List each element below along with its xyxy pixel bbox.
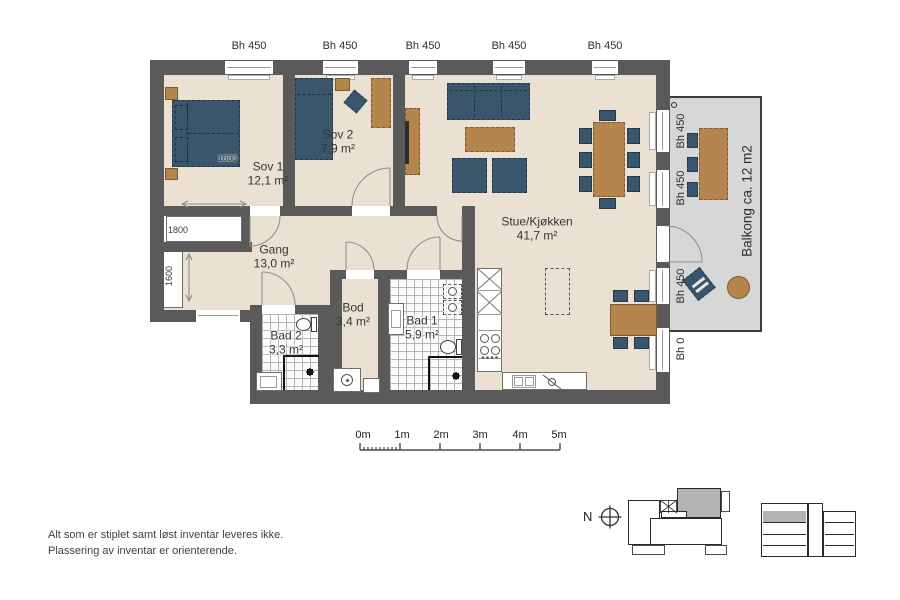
coffee-table xyxy=(465,127,515,152)
scale-label: 4m xyxy=(512,429,527,441)
nightstand xyxy=(165,87,178,100)
scale-label: 2m xyxy=(433,429,448,441)
window-height-label: Bh 450 xyxy=(675,171,687,206)
washer-dashed xyxy=(443,284,462,299)
room-label-sov1: Sov 1 12,1 m² xyxy=(248,160,289,189)
dining-chair xyxy=(599,110,616,121)
small-dining-chair xyxy=(634,337,649,349)
room-label-bod: Bod 3,4 m² xyxy=(336,301,370,330)
dryer-dashed xyxy=(443,300,462,315)
dining-chair xyxy=(627,128,640,144)
toilet-tank xyxy=(456,339,462,355)
elevation-floor-line xyxy=(763,522,806,523)
room-area: 3,4 m² xyxy=(336,315,370,329)
window-right-3 xyxy=(657,268,669,304)
room-label-bad2: Bad 2 3,3 m² xyxy=(269,329,303,358)
wall-bod-stub-left xyxy=(342,270,346,279)
balcony-chair xyxy=(687,157,698,172)
window-top-5 xyxy=(592,61,618,74)
room-name: Bad 1 xyxy=(405,314,439,328)
elevation-tower xyxy=(808,503,823,557)
floor-plan-drawing: Bh 450 Bh 450 Bh 450 Bh 450 Bh 450 Bh 45… xyxy=(0,0,900,600)
balcony-table xyxy=(699,128,728,200)
window-height-label: Bh 450 xyxy=(675,269,687,304)
window-height-label: Bh 450 xyxy=(492,40,527,52)
dining-table xyxy=(593,122,625,197)
room-name: Stue/Kjøkken xyxy=(501,215,572,229)
window-sill xyxy=(496,75,522,80)
shower-screen xyxy=(283,355,285,390)
toilet-bowl xyxy=(440,340,456,354)
bed-dimension: 1600 xyxy=(218,153,237,163)
storage-box xyxy=(363,378,380,393)
room-area: 3,3 m² xyxy=(269,343,303,357)
scale-label: 3m xyxy=(472,429,487,441)
elevation-floor-line xyxy=(825,545,854,546)
vanity-sink xyxy=(391,310,401,328)
sink-basin xyxy=(260,376,277,388)
armchair xyxy=(452,158,487,193)
room-area: 13,0 m² xyxy=(254,257,295,271)
bed-pillow-line xyxy=(297,94,331,95)
wardrobe-dimension: 1800 xyxy=(168,225,188,235)
desk xyxy=(371,78,391,128)
keyplan-footprint xyxy=(705,545,727,555)
window-height-label: Bh 450 xyxy=(588,40,623,52)
armchair xyxy=(492,158,527,193)
wall-bad1-top-right xyxy=(440,270,462,279)
shower-screen xyxy=(428,356,430,390)
balcony-label: Balkong ca. 12 m2 xyxy=(740,145,755,257)
small-dining-table xyxy=(610,304,657,336)
room-area: 5,9 m² xyxy=(405,328,439,342)
window-sill xyxy=(228,75,270,80)
balcony-chair xyxy=(687,133,698,148)
wall-hall-3 xyxy=(390,206,437,216)
water-heater-dot xyxy=(346,379,349,382)
room-label-gang: Gang 13,0 m² xyxy=(254,243,295,272)
elevation-floor-line xyxy=(825,534,854,535)
disclaimer-line-2: Plassering av inventar er orienterende. xyxy=(48,545,237,557)
small-dining-chair xyxy=(613,290,628,302)
room-label-stue: Stue/Kjøkken 41,7 m² xyxy=(501,215,572,244)
window-right-4 xyxy=(657,328,669,372)
wardrobe-dimension: 1600 xyxy=(164,266,174,286)
pillow xyxy=(175,105,188,130)
room-name: Sov 2 xyxy=(321,128,355,142)
sink-basin xyxy=(514,377,523,386)
dining-chair xyxy=(579,176,592,192)
window-right-2 xyxy=(657,170,669,208)
elevation-floor-line xyxy=(763,545,806,546)
balcony-door-opening xyxy=(657,226,669,262)
north-compass-icon xyxy=(599,506,622,529)
balcony-chair xyxy=(687,182,698,197)
scale-label: 5m xyxy=(551,429,566,441)
cabinet-divider xyxy=(477,358,502,359)
toilet-tank xyxy=(311,317,317,332)
cabinet-divider xyxy=(477,290,502,291)
kitchen-island-dashed xyxy=(545,268,570,315)
shower-screen xyxy=(428,356,462,358)
keyplan-notch xyxy=(661,511,687,518)
bed-split-line xyxy=(188,133,239,134)
window-height-label: Bh 450 xyxy=(323,40,358,52)
nightstand xyxy=(335,78,350,91)
wall-closet-bottom xyxy=(164,242,252,252)
pillow xyxy=(175,137,188,162)
window-top-1 xyxy=(225,61,273,74)
wall-bod-stub-right xyxy=(374,270,378,279)
dining-chair xyxy=(627,176,640,192)
dining-chair xyxy=(599,198,616,209)
balcony-drain-icon xyxy=(671,102,677,108)
wall-left xyxy=(150,60,164,322)
dining-chair xyxy=(579,152,592,168)
window-sill xyxy=(412,75,434,80)
elevation-highlighted-floor xyxy=(763,511,806,522)
wall-gang-stue xyxy=(462,206,475,390)
sink-basin xyxy=(525,377,534,386)
floor-gang-low xyxy=(250,270,330,305)
window-sill xyxy=(649,112,656,150)
window-sill xyxy=(649,270,656,302)
room-name: Gang xyxy=(254,243,295,257)
cabinet-divider xyxy=(477,330,502,331)
entrance-door-opening xyxy=(196,310,240,322)
keyplan-main-block xyxy=(650,518,722,545)
room-area: 41,7 m² xyxy=(501,229,572,243)
window-height-label: Bh 450 xyxy=(675,114,687,149)
wall-bottom xyxy=(250,390,670,404)
small-dining-chair xyxy=(613,337,628,349)
window-top-4 xyxy=(493,61,525,74)
sofa xyxy=(447,83,530,120)
nightstand xyxy=(165,168,178,180)
window-height-label: Bh 450 xyxy=(232,40,267,52)
dining-chair xyxy=(579,128,592,144)
kitchen-tall-cabinets xyxy=(477,268,502,372)
small-dining-chair xyxy=(634,290,649,302)
wall-hall-1 xyxy=(164,206,250,216)
wall-bad2-top-left xyxy=(250,305,262,314)
keyplan-balcony-strip xyxy=(721,491,730,512)
room-label-bad1: Bad 1 5,9 m² xyxy=(405,314,439,343)
wall-sov2-stue xyxy=(393,60,405,206)
room-area: 12,1 m² xyxy=(248,174,289,188)
keyplan-footprint xyxy=(632,545,665,555)
room-name: Sov 1 xyxy=(248,160,289,174)
window-height-label: Bh 0 xyxy=(675,338,687,361)
room-name: Bod xyxy=(336,301,370,315)
scale-bar xyxy=(360,443,560,450)
cabinet-divider xyxy=(477,314,502,315)
balcony-round-table xyxy=(727,276,750,299)
window-top-2 xyxy=(323,61,358,74)
scale-label: 0m xyxy=(355,429,370,441)
tv xyxy=(405,121,409,164)
room-name: Bad 2 xyxy=(269,329,303,343)
room-label-sov2: Sov 2 7,9 m² xyxy=(321,128,355,157)
wall-hall-2 xyxy=(280,206,352,216)
window-sill xyxy=(595,75,615,80)
window-sill xyxy=(649,330,656,370)
room-area: 7,9 m² xyxy=(321,142,355,156)
window-height-label: Bh 450 xyxy=(406,40,441,52)
wall-bad2-right xyxy=(318,305,330,404)
scale-label: 1m xyxy=(394,429,409,441)
disclaimer-line-1: Alt som er stiplet samt løst inventar le… xyxy=(48,529,283,541)
window-top-3 xyxy=(409,61,437,74)
elevation-floor-line xyxy=(763,534,806,535)
compass-north-label: N xyxy=(583,509,592,524)
window-sill xyxy=(649,172,656,206)
elevation-floor-line xyxy=(825,522,854,523)
sofa-back-line xyxy=(450,90,527,91)
window-right-1 xyxy=(657,110,669,152)
dining-chair xyxy=(627,152,640,168)
